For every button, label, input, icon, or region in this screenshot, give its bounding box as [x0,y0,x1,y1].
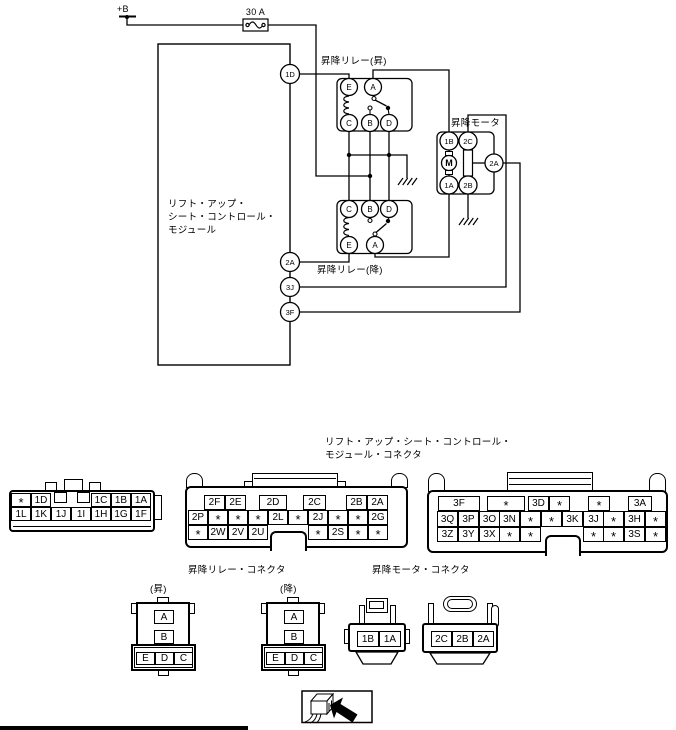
relay-up-pin-c: C [346,119,352,128]
pin-cell: * [288,510,308,525]
pin-cell: 3Q [437,511,458,527]
pin-cell: * [328,510,348,525]
relay-down-switch [368,218,390,237]
pin-cell: B [154,630,174,644]
module-label-line2: シート・コントロール・ [168,211,276,224]
pin-cell: 2S [328,525,348,540]
relay-up-coil [344,96,349,114]
pin-cell: 2A [473,631,494,647]
pin-cell: * [588,496,610,511]
wire-fuse-to-relay-b [268,25,370,176]
wire-2a-to-coil [300,254,349,263]
pin-cell: * [228,510,248,525]
pin-cell: 1B [357,631,379,647]
module-connector-label-line1: リフト・アップ・シート・コントロール・ [325,436,511,449]
ground-symbol [398,178,417,185]
pin-cell: 1K [31,507,51,521]
pin-cell: 3P [458,511,479,527]
shell-notch [545,535,581,556]
pin-cell: * [645,511,666,527]
relay-down-label: 昇降リレー(降) [317,264,383,277]
relay-down-coil [344,218,349,236]
pin-cell: 1L [11,507,31,521]
module-label-line1: リフト・アップ・ [168,198,246,211]
pin-cell: 1A [379,631,401,647]
wire-ground-link [349,155,407,178]
pin-cell: 3H [624,511,645,527]
pin-cell: A [154,610,174,624]
relay-up-label: 昇降リレー(昇) [321,55,387,68]
shell-rail [507,472,593,491]
pin-cell: 1F [131,507,151,521]
pin-cell: 3D [528,496,549,511]
pin-cell: D [155,652,174,665]
pin-cell: * [487,496,525,511]
shell-cutout [77,492,90,503]
fuse-symbol [243,19,268,31]
pin-cell: * [549,496,570,511]
page-edge-bar [0,726,248,730]
pin-cell: * [188,525,208,540]
pin-cell: * [208,510,228,525]
motor-connector2-skirt [430,653,490,664]
relay-up-pin-d: D [386,119,392,128]
pin-cell: 1A [131,493,151,507]
fuse-label: 30 A [241,6,270,19]
relay-connector-label: 昇降リレー・コネクタ [188,564,286,577]
relay-down-pin-e: E [346,241,351,250]
pin-cell: 2V [228,525,248,540]
pin-cell: * [541,511,562,527]
motor-assembly: M 1B 2C 1A 2B 2A [437,132,503,194]
relay-down-pin-b: B [367,205,372,214]
relay-up-pin-a: A [370,83,376,92]
relay-down-pin-a: A [372,241,378,250]
pin-cell: 2A [367,495,388,510]
pin-cell: 3N [499,511,520,527]
pin-cell: * [520,527,541,542]
shell-rail-line [509,484,591,485]
pin-cell: 1C [91,493,111,507]
lock-tab-inner [369,601,384,609]
pin-cell: C [304,652,323,665]
pin-cell: * [603,511,624,527]
pin-cell: 2C [303,495,326,510]
motor-resistor [464,150,473,176]
pin-cell: 3S [624,527,645,542]
module-pin-3j: 3J [286,283,294,292]
pin-cell: 2B [452,631,473,647]
ground-symbol [459,218,478,225]
motor-pin-2c: 2C [463,137,473,146]
pin-cell: 2J [308,510,328,525]
pin-cell: 2U [248,525,268,540]
pin-cell: 2F [204,495,225,510]
pin-cell: 2E [225,495,246,510]
pin-cell: * [248,510,268,525]
wiring-diagram-page: E A C B D C B D E A [0,0,676,730]
pin-cell: 2G [368,510,388,525]
motor-pin-1a: 1A [444,181,453,190]
circuit-diagram: E A C B D C B D E A [0,0,676,730]
pin-cell: 2L [268,510,288,525]
shell-notch [270,531,307,551]
pin-cell: * [645,527,666,542]
shell-rail-line [254,478,336,479]
motor-m-label: M [445,158,453,168]
relay-down-pin-c: C [346,205,352,214]
pin-cell: 1I [71,507,91,521]
relay-up: E A C B D [337,79,412,132]
module-label-line3: モジュール [168,224,216,237]
pin-cell: 1H [91,507,111,521]
pin-cell: E [266,652,285,665]
pin-cell: 2W [208,525,228,540]
pin-cell: E [136,652,155,665]
wire-3f-to-motor-2a [300,163,520,312]
relay-down: C B D E A [337,201,412,254]
pin-cell: A [284,610,304,624]
pin-cell: 2P [188,510,208,525]
pin-cell: * [499,527,520,542]
connector-prong [428,603,434,625]
pin-cell: * [603,527,624,542]
pin-cell: * [348,510,368,525]
connector-prong [390,605,396,625]
wire-power-to-fuse [127,17,243,25]
motor-connector-label: 昇降モータ・コネクタ [372,564,470,577]
connector-prong [359,605,365,625]
pin-cell: * [308,525,328,540]
pin-cell: 3Z [437,527,458,542]
pin-cell: 1B [111,493,131,507]
pin-cell: 1J [51,507,71,521]
pin-cell: 3Y [458,527,479,542]
pin-cell: 3O [479,511,500,527]
lock-tab-inner [447,599,473,609]
motor-label: 昇降モータ [451,117,500,130]
pin-cell: 1G [111,507,131,521]
pin-cell: 1D [31,493,51,507]
pin-cell: * [520,511,541,527]
pin-cell: 2B [346,495,367,510]
pin-cell: 2C [431,631,452,647]
module-pin-1d: 1D [285,70,295,79]
pin-cell: 3X [479,527,500,542]
motor-connector1-skirt [356,652,398,664]
pin-cell: D [285,652,304,665]
motor-pin-2b: 2B [463,181,472,190]
pin-cell: 3F [438,496,480,511]
relay-up-pin-b: B [367,119,372,128]
relay-up-tag: (昇) [150,583,167,596]
pin-cell: 2D [259,495,287,510]
pin-cell: * [368,525,388,540]
relay-up-pin-e: E [346,83,351,92]
pin-cell: C [174,652,193,665]
pin-cell: * [348,525,368,540]
relay-down-tag: (降) [280,583,297,596]
pin-cell: 3K [562,511,583,527]
pin-cell: B [284,630,304,644]
pin-cell: 3J [583,511,604,527]
power-label: +B [117,3,129,16]
module-pin-2a: 2A [285,258,294,267]
pin-cell: * [11,493,31,507]
wire-1d-to-coil [299,74,349,79]
harness-view-icon [302,691,372,723]
module-pin-3f: 3F [286,308,295,317]
motor-pin-2a: 2A [489,159,498,168]
pin-cell: * [583,527,604,542]
motor-pin-1b: 1B [444,137,453,146]
relay-down-pin-d: D [386,205,392,214]
shell-inner-line [13,526,151,527]
shell-cutout [54,492,67,503]
module-connector-label-line2: モジュール・コネクタ [325,449,422,462]
relay-up-switch [368,97,390,115]
junction-dots [125,15,391,178]
pin-cell: 3A [628,496,652,511]
shell-rail-line [509,478,591,479]
